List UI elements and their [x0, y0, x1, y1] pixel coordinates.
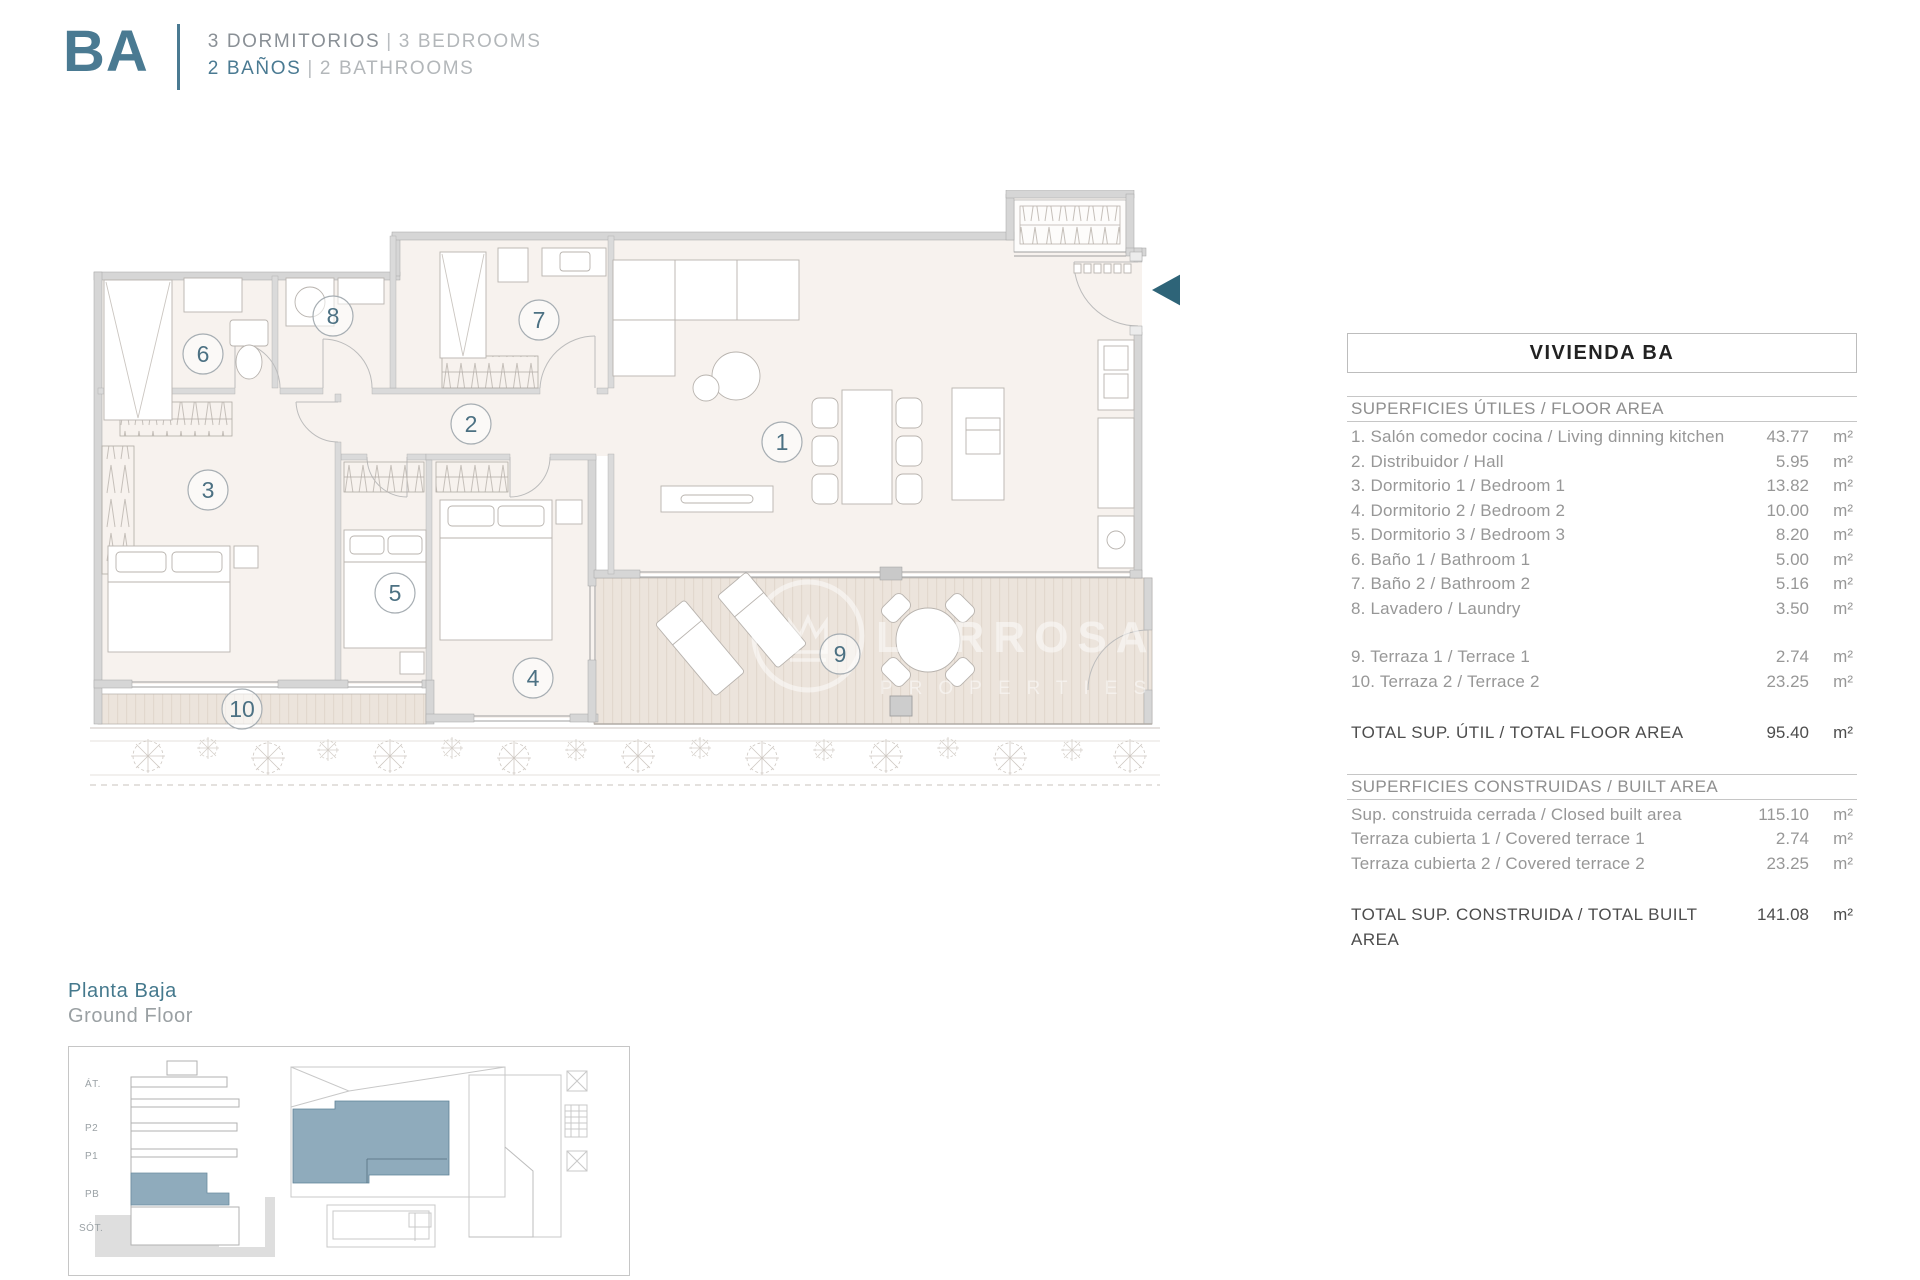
floor-area-rows: 1. Salón comedor cocina / Living dinning… [1347, 422, 1857, 746]
room-label-2: 2 [451, 404, 491, 444]
plan-sheet: BA 3 DORMITORIOS|3 BEDROOMS 2 BAÑOS|2 BA… [0, 0, 1920, 1280]
area-row: 5. Dormitorio 3 / Bedroom 38.20m² [1347, 523, 1857, 548]
location-key-svg: ÁT. P2 P1 PB SÓT. [69, 1047, 627, 1273]
floor-area-total: TOTAL SUP. ÚTIL / TOTAL FLOOR AREA95.40m… [1347, 721, 1857, 746]
watermark-brand: LARROSA&CO [876, 613, 1180, 662]
highlighted-unit [293, 1101, 449, 1183]
watermark-sub: PROPERTIES [880, 678, 1162, 699]
room-label-4: 4 [513, 658, 553, 698]
area-row: Terraza cubierta 2 / Covered terrace 223… [1347, 852, 1857, 877]
ground-floor-label: Planta Baja Ground Floor [68, 980, 193, 1028]
area-row: 6. Baño 1 / Bathroom 15.00m² [1347, 548, 1857, 573]
entry-arrow-icon [1152, 273, 1180, 307]
ground-floor-es: Planta Baja [68, 980, 193, 1003]
floor-plan-svg: LARROSA&CO PROPERTIES 1 2 3 4 5 6 7 8 9 … [90, 190, 1180, 800]
location-key-box: ÁT. P2 P1 PB SÓT. [68, 1046, 630, 1276]
floor-area-header: SUPERFICIES ÚTILES / FLOOR AREA [1347, 396, 1857, 422]
area-row: 7. Baño 2 / Bathroom 25.16m² [1347, 572, 1857, 597]
garden-strip [90, 728, 1160, 785]
kitchen-island [952, 388, 1004, 500]
sink-bath1 [184, 278, 242, 312]
bedrooms-en: 3 BEDROOMS [399, 31, 542, 52]
area-row: 10. Terraza 2 / Terrace 223.25m² [1347, 670, 1857, 695]
room-label-3: 3 [188, 470, 228, 510]
bed-bedroom-2 [440, 500, 552, 640]
header: BA 3 DORMITORIOS|3 BEDROOMS 2 BAÑOS|2 BA… [63, 20, 542, 90]
ground-floor-en: Ground Floor [68, 1005, 193, 1028]
nightstand [234, 546, 258, 568]
bedrooms-line: 3 DORMITORIOS|3 BEDROOMS [208, 28, 542, 55]
svg-text:1: 1 [776, 429, 789, 455]
separator: | [380, 31, 399, 52]
level-label: PB [85, 1189, 99, 1200]
area-row: 8. Lavadero / Laundry3.50m² [1347, 597, 1857, 622]
room-label-10: 10 [222, 689, 262, 729]
svg-text:5: 5 [389, 580, 402, 606]
table-title: VIVIENDA BA [1530, 342, 1675, 365]
area-row: Terraza cubierta 1 / Covered terrace 12.… [1347, 827, 1857, 852]
dining-table [812, 390, 922, 504]
svg-text:7: 7 [533, 307, 546, 333]
elevator-icon [567, 1071, 587, 1171]
separator: | [301, 58, 320, 79]
mini-site-plan [291, 1067, 587, 1247]
planter [890, 696, 912, 716]
nightstand [400, 652, 424, 674]
room-label-6: 6 [183, 334, 223, 374]
level-label: P1 [85, 1151, 98, 1162]
svg-text:9: 9 [834, 641, 847, 667]
bed-bedroom-1 [108, 546, 230, 652]
nightstand [556, 500, 582, 524]
svg-text:2: 2 [465, 411, 478, 437]
bedrooms-es: 3 DORMITORIOS [208, 31, 380, 52]
bathrooms-es: 2 BAÑOS [208, 58, 302, 79]
kitchen-counter [1098, 340, 1134, 568]
built-area-rows: Sup. construida cerrada / Closed built a… [1347, 800, 1857, 953]
area-row: 3. Dormitorio 1 / Bedroom 113.82m² [1347, 474, 1857, 499]
header-lines: 3 DORMITORIOS|3 BEDROOMS 2 BAÑOS|2 BATHR… [208, 20, 542, 82]
area-row: 4. Dormitorio 2 / Bedroom 210.00m² [1347, 499, 1857, 524]
level-label: ÁT. [85, 1077, 101, 1090]
area-table: VIVIENDA BA SUPERFICIES ÚTILES / FLOOR A… [1347, 333, 1857, 952]
room-label-9: 9 [820, 634, 860, 674]
shower-bath2 [440, 252, 486, 358]
svg-text:3: 3 [202, 477, 215, 503]
mini-section-diagram: ÁT. P2 P1 PB SÓT. [79, 1061, 275, 1257]
level-label: P2 [85, 1123, 98, 1134]
shower-bath1 [104, 280, 172, 420]
bathrooms-line: 2 BAÑOS|2 BATHROOMS [208, 55, 542, 82]
terrace-post [880, 567, 902, 580]
cabinet-bath2 [498, 248, 528, 282]
area-row: 2. Distribuidor / Hall5.95m² [1347, 450, 1857, 475]
stair-hatch [565, 1105, 587, 1137]
tv-bench [661, 486, 773, 512]
room-label-8: 8 [313, 296, 353, 336]
unit-code: BA [63, 20, 149, 84]
svg-text:8: 8 [327, 303, 340, 329]
room-label-5: 5 [375, 573, 415, 613]
svg-text:4: 4 [527, 665, 540, 691]
level-label: SÓT. [79, 1221, 103, 1234]
room-label-1: 1 [762, 422, 802, 462]
header-divider [177, 24, 180, 90]
built-area-total: TOTAL SUP. CONSTRUIDA / TOTAL BUILT AREA… [1347, 903, 1857, 952]
table-title-box: VIVIENDA BA [1347, 333, 1857, 373]
vanity-bath2 [542, 248, 606, 276]
svg-text:6: 6 [197, 341, 210, 367]
highlighted-floor [131, 1173, 229, 1205]
area-row: Sup. construida cerrada / Closed built a… [1347, 803, 1857, 828]
built-area-header: SUPERFICIES CONSTRUIDAS / BUILT AREA [1347, 774, 1857, 800]
bathrooms-en: 2 BATHROOMS [320, 58, 475, 79]
room-label-7: 7 [519, 300, 559, 340]
area-row: 9. Terraza 1 / Terrace 12.74m² [1347, 645, 1857, 670]
svg-text:10: 10 [229, 696, 255, 722]
area-row: 1. Salón comedor cocina / Living dinning… [1347, 425, 1857, 450]
balcony [1014, 200, 1126, 252]
floor-plan: LARROSA&CO PROPERTIES 1 2 3 4 5 6 7 8 9 … [90, 190, 1180, 800]
